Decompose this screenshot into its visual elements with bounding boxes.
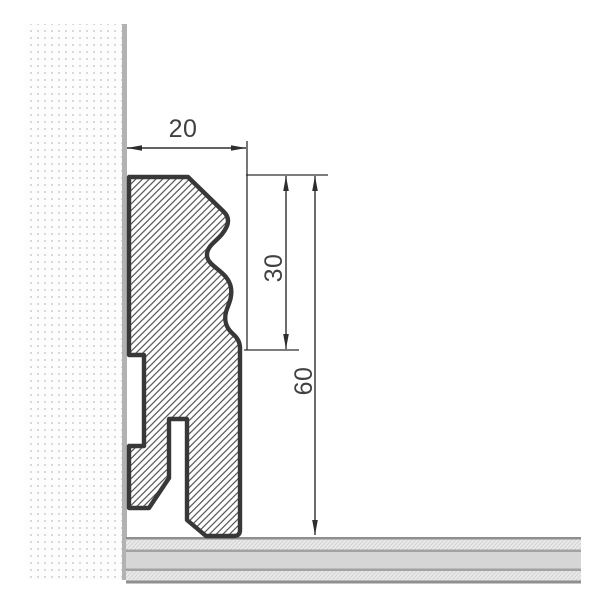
floor-underlay-bottom: [126, 571, 581, 581]
wall-surface: [25, 24, 122, 580]
floor: [126, 537, 581, 584]
dimension-total-height-label: 60: [290, 367, 318, 396]
drawing-canvas: 20 30 60: [0, 0, 604, 604]
floor-core-band: [126, 552, 581, 569]
floor-bottom-line: [126, 581, 581, 584]
floor-top-line: [126, 537, 581, 540]
floor-underlay-top: [126, 540, 581, 550]
floor-band-edge-1: [126, 550, 581, 553]
floor-band-edge-2: [126, 569, 581, 572]
dimension-width-label: 20: [169, 115, 198, 143]
wall-face-line: [122, 24, 127, 580]
dimension-upper-height-label: 30: [260, 254, 288, 283]
wall: [25, 24, 127, 580]
